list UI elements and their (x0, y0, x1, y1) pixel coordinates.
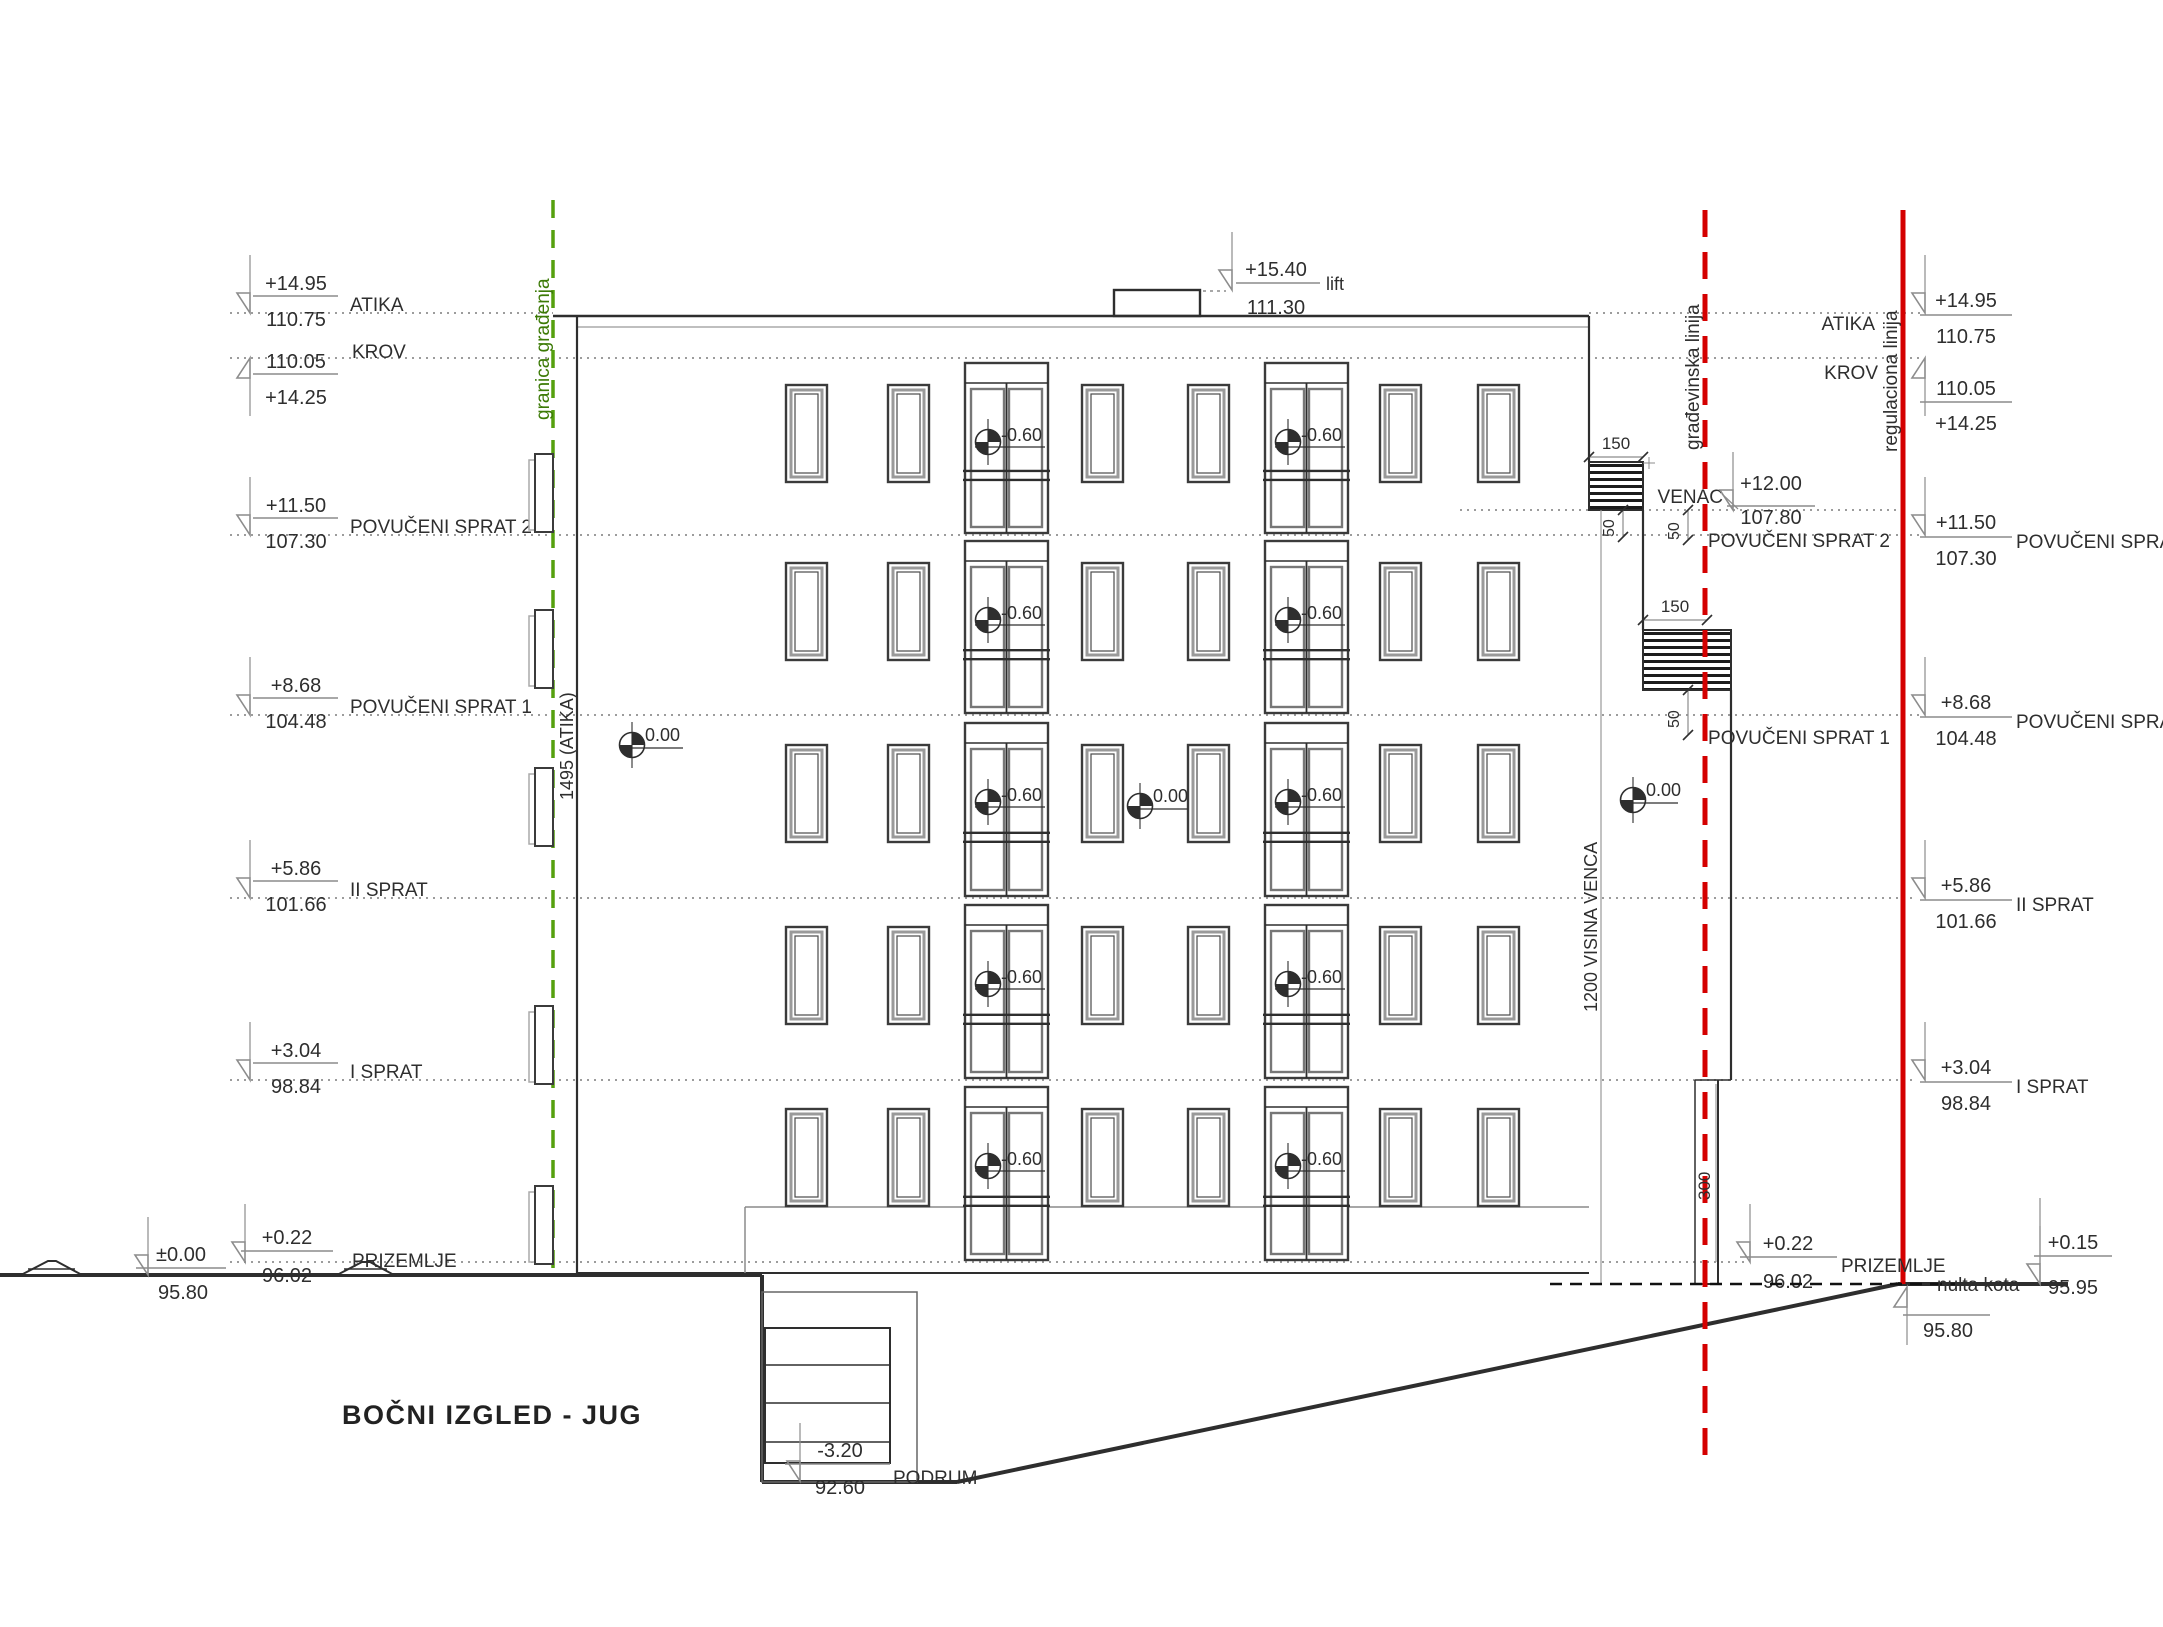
drawing-canvas: -0.60-0.60-0.60-0.60-0.60-0.60-0.60-0.60… (0, 0, 2163, 1627)
level-label-right-ii-sprat-under: 101.66 (1935, 911, 1996, 933)
level-label-right-ii-sprat-name: II SPRAT (2016, 895, 2094, 916)
level-arrow-icon (237, 515, 250, 535)
level-label-right-atika-under: 110.75 (1936, 326, 1996, 348)
door-level-text: -0.60 (1301, 1149, 1342, 1169)
level-label-left-teren-over: ±0.00 (156, 1244, 206, 1266)
level-label-left-prizemlje-over: +0.22 (262, 1227, 313, 1249)
prizemlje-right-name: PRIZEMLJE (1841, 1256, 1946, 1277)
side-balcony (535, 1186, 553, 1264)
level-arrow-icon (1912, 515, 1925, 535)
level-label-right-krov-over: 110.05 (1936, 378, 1996, 400)
nulta-kota-label: nulta kota (1937, 1275, 2020, 1296)
lift-label: lift (1326, 274, 1344, 294)
door-level-text: -0.60 (1001, 425, 1042, 445)
podrum-over: -3.20 (817, 1440, 863, 1462)
level-label-right-i-sprat-name: I SPRAT (2016, 1077, 2089, 1098)
venac-over: +12.00 (1740, 473, 1802, 495)
side-balcony (535, 768, 553, 846)
level-label-right-povuceni-sprat-1-name: POVUČENI SPRAT 1 (2016, 711, 2163, 733)
level-label-right-atika-over: +14.95 (1935, 290, 1997, 312)
podrum-under: 92.60 (815, 1477, 865, 1499)
level-label-left-krov-name: KROV (352, 342, 406, 363)
granica-gradjenja-label: granica građenja (533, 278, 554, 420)
prizemlje-right-under: 96.02 (1763, 1271, 1813, 1293)
level-label-left-povuceni-sprat-2-name: POVUČENI SPRAT 2 (350, 516, 532, 538)
level-label-left-povuceni-sprat-2-under: 107.30 (265, 531, 326, 553)
level-arrow-icon (1894, 1287, 1907, 1307)
level-label-left-i-sprat-name: I SPRAT (350, 1062, 423, 1083)
level-label-left-atika-over: +14.95 (265, 273, 327, 295)
venac-label: VENAC (1658, 487, 1723, 508)
dim-150-text: 150 (1602, 434, 1630, 453)
level-label-left-krov-over: 110.05 (266, 351, 326, 373)
level-label-left-atika-under: 110.75 (266, 309, 326, 331)
level-label-right-povuceni-sprat-1-name-mid: POVUČENI SPRAT 1 (1708, 727, 1890, 749)
level-arrow-icon (237, 358, 250, 378)
level-arrow-icon (1912, 358, 1925, 378)
level-label-right-krov-under: +14.25 (1935, 413, 1997, 435)
level-label-left-teren-under: 95.80 (158, 1282, 208, 1304)
dim-50-text: 50 (1666, 522, 1683, 540)
level-label-left-prizemlje-name: PRIZEMLJE (352, 1251, 457, 1272)
level-arrow-icon (1912, 1060, 1925, 1080)
door-level-text: -0.60 (1001, 1149, 1042, 1169)
terrain-slope-line (957, 1284, 1898, 1482)
side-balcony (535, 454, 553, 532)
level-label-right-povuceni-sprat-2-name-mid: POVUČENI SPRAT 2 (1708, 530, 1890, 552)
level-arrow-icon (1912, 293, 1925, 313)
level-label-right-krov-name: KROV (1824, 363, 1878, 384)
benchmark-icon (21, 1261, 82, 1275)
door-level-text: -0.60 (1301, 603, 1342, 623)
door-level-text: -0.60 (1001, 603, 1042, 623)
level-arrow-icon (237, 293, 250, 313)
level-arrow-icon (1912, 695, 1925, 715)
lift-box (1114, 290, 1200, 316)
zero-level-text: 0.00 (1153, 786, 1188, 806)
lift-under: 111.30 (1247, 297, 1305, 319)
level-arrow-icon (237, 695, 250, 715)
level-label-right-ii-sprat-over: +5.86 (1941, 875, 1992, 897)
door-level-text: -0.60 (1301, 967, 1342, 987)
zero-level-text: 0.00 (1646, 780, 1681, 800)
level-label-right-povuceni-sprat-2-over: +11.50 (1936, 512, 1996, 534)
podrum-label: PODRUM (893, 1468, 977, 1489)
level-label-left-povuceni-sprat-1-over: +8.68 (271, 675, 322, 697)
drawing-title: BOČNI IZGLED - JUG (342, 1400, 642, 1431)
zero-level-text: 0.00 (645, 725, 680, 745)
gradjevinska-linija-label: građevinska linija (1683, 304, 1704, 450)
level-label-right-povuceni-sprat-2-under: 107.30 (1935, 548, 1996, 570)
teren-right-over: +0.15 (2048, 1232, 2099, 1254)
regulaciona-linija-label: regulaciona linija (1881, 310, 1902, 452)
door-level-text: -0.60 (1001, 785, 1042, 805)
roof-overhang-hatch (1589, 462, 1643, 510)
dim-300-text: 300 (1695, 1172, 1714, 1200)
level-arrow-icon (237, 878, 250, 898)
dim-visina-venca: 1200 VISINA VENCA (1581, 842, 1601, 1012)
level-arrow-icon (2027, 1264, 2040, 1284)
level-arrow-icon (1912, 878, 1925, 898)
side-balcony (535, 1006, 553, 1084)
level-label-right-povuceni-sprat-1-under: 104.48 (1935, 728, 1996, 750)
level-label-right-atika-name: ATIKA (1822, 314, 1876, 335)
level-arrow-icon (135, 1255, 148, 1275)
dim-150-text: 150 (1661, 597, 1689, 616)
level-label-right-povuceni-sprat-2-name: POVUČENI SPRAT 2 (2016, 531, 2163, 553)
level-label-left-ii-sprat-under: 101.66 (265, 894, 326, 916)
lift-over: +15.40 (1245, 259, 1307, 281)
level-arrow-icon (1219, 270, 1232, 290)
terrace-overhang-hatch (1643, 630, 1731, 690)
level-label-left-prizemlje-under: 96.02 (262, 1265, 312, 1287)
level-label-left-ii-sprat-over: +5.86 (271, 858, 322, 880)
level-label-left-krov-under: +14.25 (265, 387, 327, 409)
level-label-left-i-sprat-under: 98.84 (271, 1076, 321, 1098)
elevation-svg: -0.60-0.60-0.60-0.60-0.60-0.60-0.60-0.60… (0, 0, 2163, 1627)
level-label-right-i-sprat-over: +3.04 (1941, 1057, 1992, 1079)
level-label-left-povuceni-sprat-2-over: +11.50 (266, 495, 326, 517)
dim-50-text: 50 (1601, 519, 1618, 537)
level-label-left-ii-sprat-name: II SPRAT (350, 880, 428, 901)
door-level-text: -0.60 (1001, 967, 1042, 987)
teren-right-under: 95.95 (2048, 1277, 2098, 1299)
nulta-kota-value: 95.80 (1923, 1320, 1973, 1342)
prizemlje-right-over: +0.22 (1763, 1233, 1814, 1255)
level-label-left-i-sprat-over: +3.04 (271, 1040, 322, 1062)
dim-atika-total: 1495 (ATIKA) (557, 692, 577, 800)
level-label-right-i-sprat-under: 98.84 (1941, 1093, 1991, 1115)
side-balcony (535, 610, 553, 688)
door-level-text: -0.60 (1301, 425, 1342, 445)
level-label-left-atika-name: ATIKA (350, 295, 404, 316)
level-arrow-icon (237, 1060, 250, 1080)
dim-50-text: 50 (1666, 710, 1683, 728)
level-arrow-icon (1737, 1242, 1750, 1262)
door-level-text: -0.60 (1301, 785, 1342, 805)
level-label-right-povuceni-sprat-1-over: +8.68 (1941, 692, 1992, 714)
level-label-left-povuceni-sprat-1-name: POVUČENI SPRAT 1 (350, 696, 532, 718)
venac-under: 107.80 (1740, 507, 1801, 529)
level-arrow-icon (232, 1242, 245, 1262)
level-label-left-povuceni-sprat-1-under: 104.48 (265, 711, 326, 733)
